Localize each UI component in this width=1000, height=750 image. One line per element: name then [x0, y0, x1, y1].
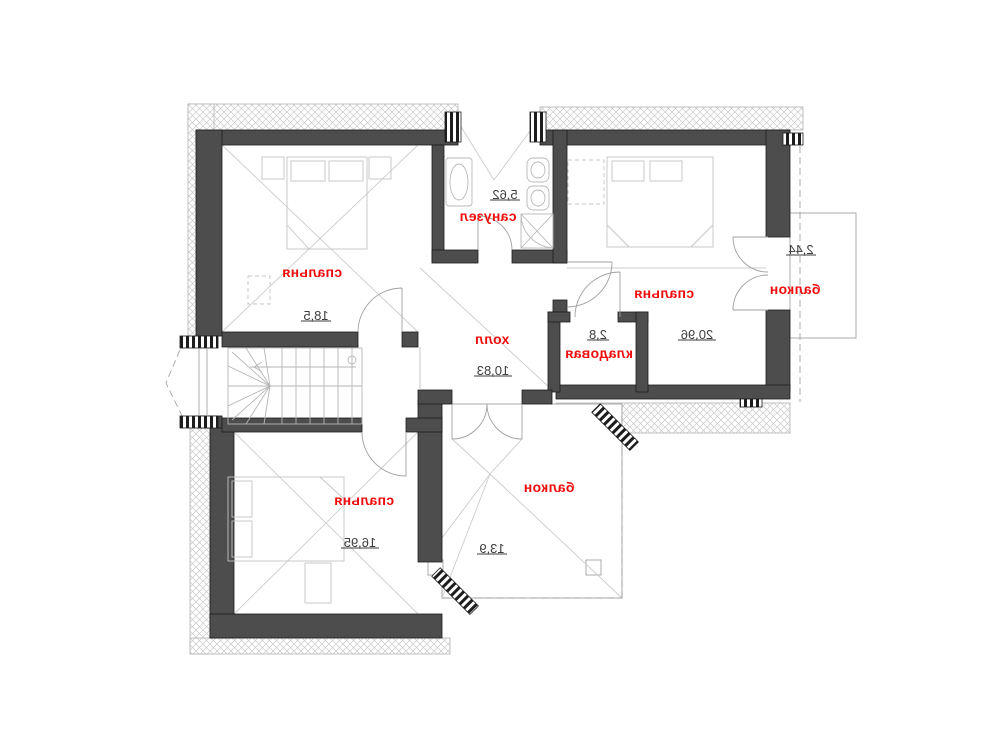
wall-tl-bottom-right — [402, 332, 418, 347]
floor-plan-canvas: спальня 18,5 санузел 5,62 спальня 20,96 … — [0, 0, 1000, 750]
wall-storage-right — [636, 312, 648, 392]
wall-tl-bottom-left — [222, 332, 358, 347]
toilet — [527, 158, 549, 182]
svg-text:спальня: спальня — [334, 492, 394, 508]
wall-bl-bottom — [210, 614, 442, 638]
wall-hall-south-right — [522, 390, 552, 404]
wall-bottom-right-section — [556, 385, 790, 399]
door-bedroom-bottom-left — [362, 432, 406, 476]
label-balcony-bottom: балкон — [524, 479, 575, 495]
wall-bath-right — [553, 130, 567, 263]
label-bedroom-top-right: спальня — [634, 285, 694, 301]
balcony-column — [586, 560, 601, 575]
wall-storage-top-left — [548, 312, 570, 322]
window-top-right — [783, 133, 803, 145]
bed-top-right — [607, 157, 713, 247]
label-bedroom-top-left: спальня — [282, 264, 342, 280]
wall-right-lower — [766, 310, 790, 392]
wall-bl-top-right — [406, 418, 442, 432]
dresser-top-left — [248, 276, 270, 304]
wardrobe-top-right — [568, 160, 604, 204]
bathtub — [446, 158, 472, 206]
window-bottom-right — [740, 399, 762, 407]
svg-text:холл: холл — [475, 331, 510, 347]
staircase — [228, 347, 420, 424]
label-hall: холл — [475, 331, 510, 347]
bed-top-left — [262, 157, 391, 249]
wall-top-right — [540, 130, 790, 145]
balcony-right-outline — [790, 213, 856, 338]
wall-hall-south-left — [418, 390, 452, 404]
wall-hall-stub — [553, 300, 567, 312]
wall-bl-left — [210, 428, 234, 638]
wall-left-upper — [196, 130, 222, 336]
svg-text:кладовая: кладовая — [565, 345, 633, 361]
wall-storage-left — [548, 312, 560, 392]
wall-bath-bottom-left — [432, 250, 478, 263]
label-storage: кладовая — [565, 345, 633, 361]
svg-text:балкон: балкон — [770, 281, 821, 297]
wall-right-upper — [766, 130, 790, 237]
door-balcony-right-top — [733, 237, 768, 272]
wall-bath-left — [432, 145, 444, 262]
stair-bay-window-top — [180, 336, 218, 348]
svg-text:санузел: санузел — [459, 208, 516, 224]
door-balcony-right-bottom — [733, 275, 768, 310]
bidet — [527, 186, 549, 210]
svg-text:спальня: спальня — [634, 285, 694, 301]
table-bottom-left — [305, 563, 331, 603]
floor-plan-svg: спальня 18,5 санузел 5,62 спальня 20,96 … — [0, 0, 1000, 750]
label-bedroom-bottom-left: спальня — [334, 492, 394, 508]
wall-bl-top-left — [222, 418, 362, 432]
bed-bottom-left — [228, 477, 344, 561]
wall-top-left — [196, 130, 458, 145]
dormer-window-left — [445, 112, 461, 142]
label-bathroom: санузел — [459, 208, 516, 224]
svg-text:спальня: спальня — [282, 264, 342, 280]
shower — [521, 214, 553, 248]
svg-text:балкон: балкон — [524, 479, 575, 495]
label-balcony-right: балкон — [770, 281, 821, 297]
stair-bay-window-bottom — [180, 416, 218, 428]
dormer-window-right — [530, 112, 546, 142]
